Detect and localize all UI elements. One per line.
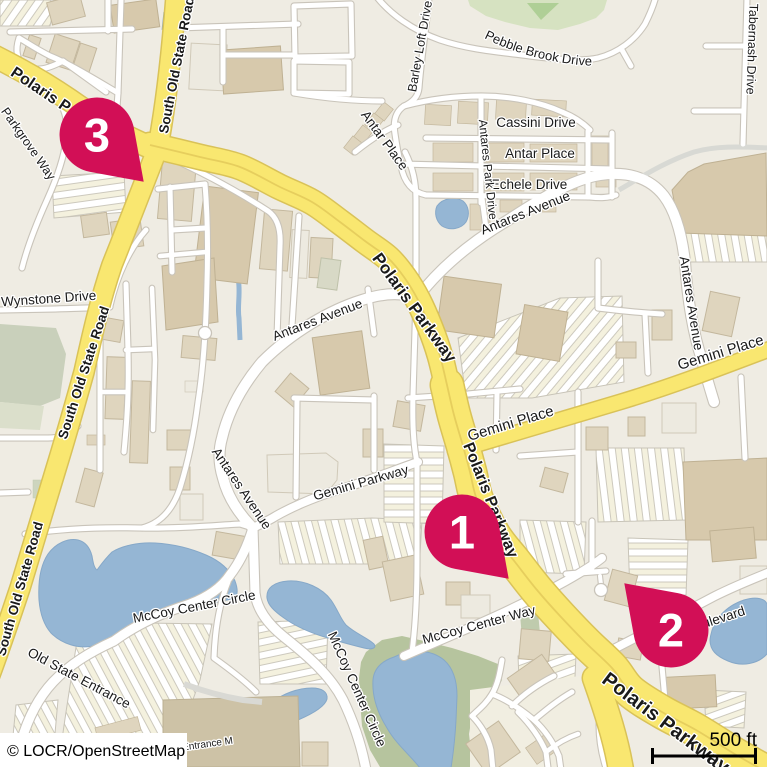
svg-text:2: 2 (658, 604, 684, 657)
svg-text:Antar Place: Antar Place (505, 146, 575, 161)
svg-text:1: 1 (449, 506, 475, 559)
svg-text:3: 3 (84, 109, 110, 162)
svg-text:Cassini Drive: Cassini Drive (496, 115, 576, 130)
svg-text:© LOCR/OpenStreetMap: © LOCR/OpenStreetMap (7, 743, 185, 760)
svg-text:500 ft: 500 ft (709, 730, 757, 751)
svg-text:Echele Drive: Echele Drive (491, 177, 568, 192)
